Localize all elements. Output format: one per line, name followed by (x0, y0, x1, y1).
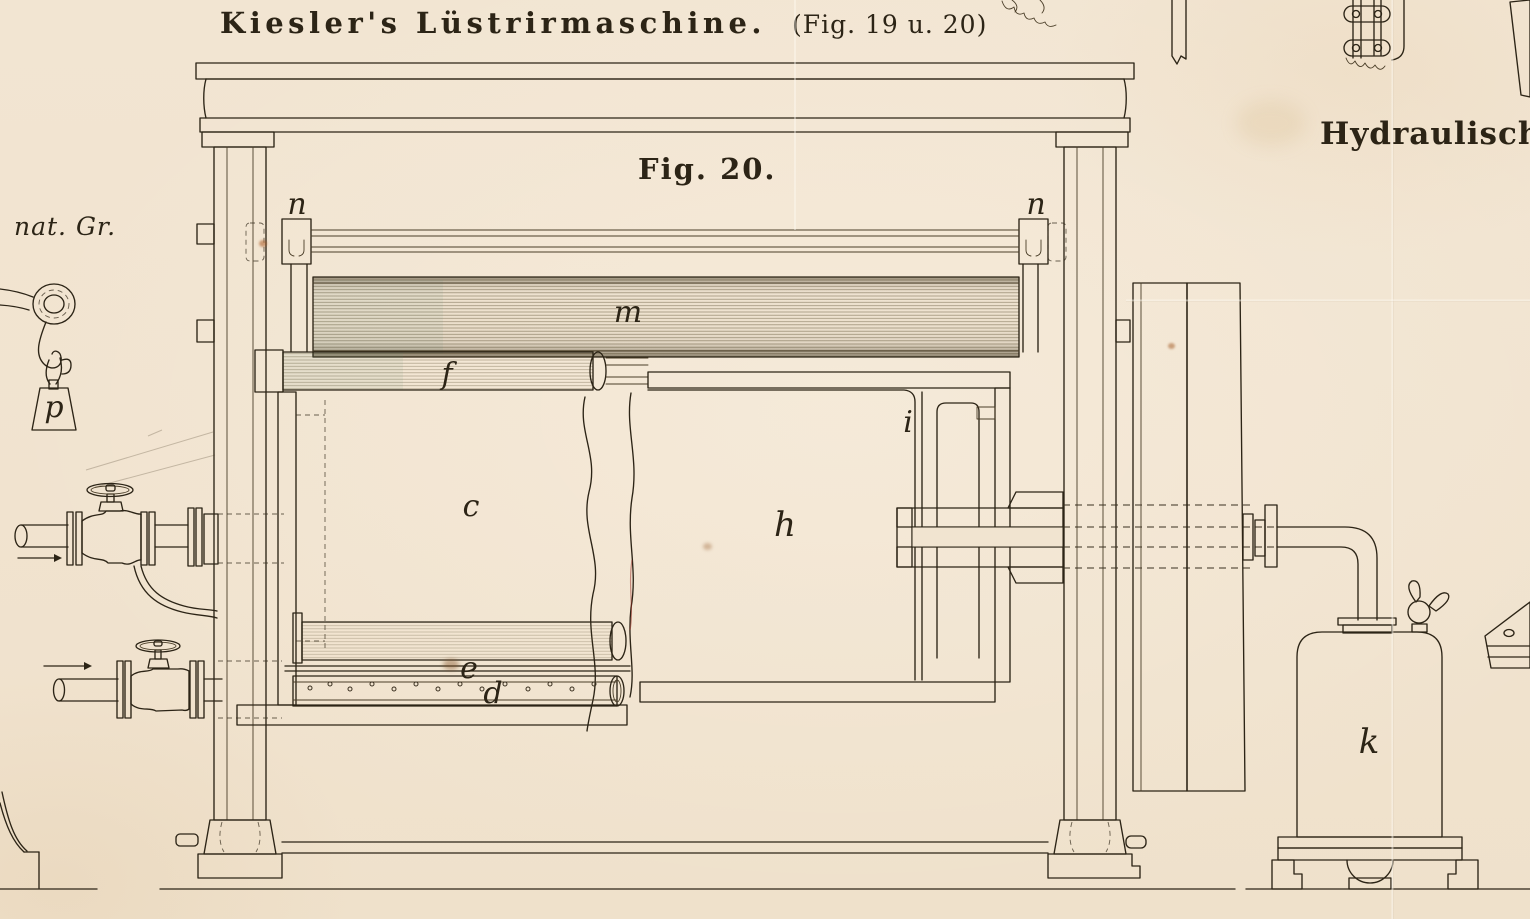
stuffing-box (897, 492, 1283, 583)
bottom-left-fragment (0, 792, 39, 888)
chamber-partitions (296, 390, 995, 731)
plate-title-row: Kiesler's Lüstrirmaschine. (Fig. 19 u. 2… (220, 6, 987, 40)
engraving-canvas: n n m f c h i e d k p (0, 0, 1530, 919)
label-e: e (460, 651, 478, 686)
rollers-e-d (285, 613, 630, 706)
wedge-fragment (1485, 602, 1530, 668)
label-i: i (903, 405, 913, 440)
press-plates (1133, 283, 1245, 791)
scale-note: nat. Gr. (14, 212, 116, 241)
plate-title-note: (Fig. 19 u. 20) (792, 10, 987, 40)
weight-assembly (0, 284, 215, 487)
label-n-left: n (287, 187, 306, 222)
plate-title: Kiesler's Lüstrirmaschine. (220, 6, 766, 40)
valve-lower (44, 640, 282, 718)
valve-upper (15, 484, 284, 619)
label-h: h (774, 505, 796, 545)
shaft-and-pipe (1243, 505, 1377, 620)
engraving-plate: n n m f c h i e d k p Kiesler's Lüstrirm… (0, 0, 1530, 919)
label-k: k (1359, 722, 1380, 762)
right-section-heading: Hydraulische Ei (1320, 116, 1530, 152)
label-n-right: n (1026, 187, 1045, 222)
roller-m (313, 277, 1019, 357)
label-c: c (463, 489, 480, 524)
machine-frame (0, 63, 1530, 889)
figure-caption: Fig. 20. (638, 152, 777, 186)
part-labels: n n m f c h i e d k p (44, 187, 1379, 762)
vessel-walls (237, 372, 1010, 725)
top-edge-fragments (1002, 0, 1530, 97)
label-p: p (44, 390, 63, 425)
label-d: d (483, 676, 502, 711)
label-m: m (614, 295, 642, 330)
